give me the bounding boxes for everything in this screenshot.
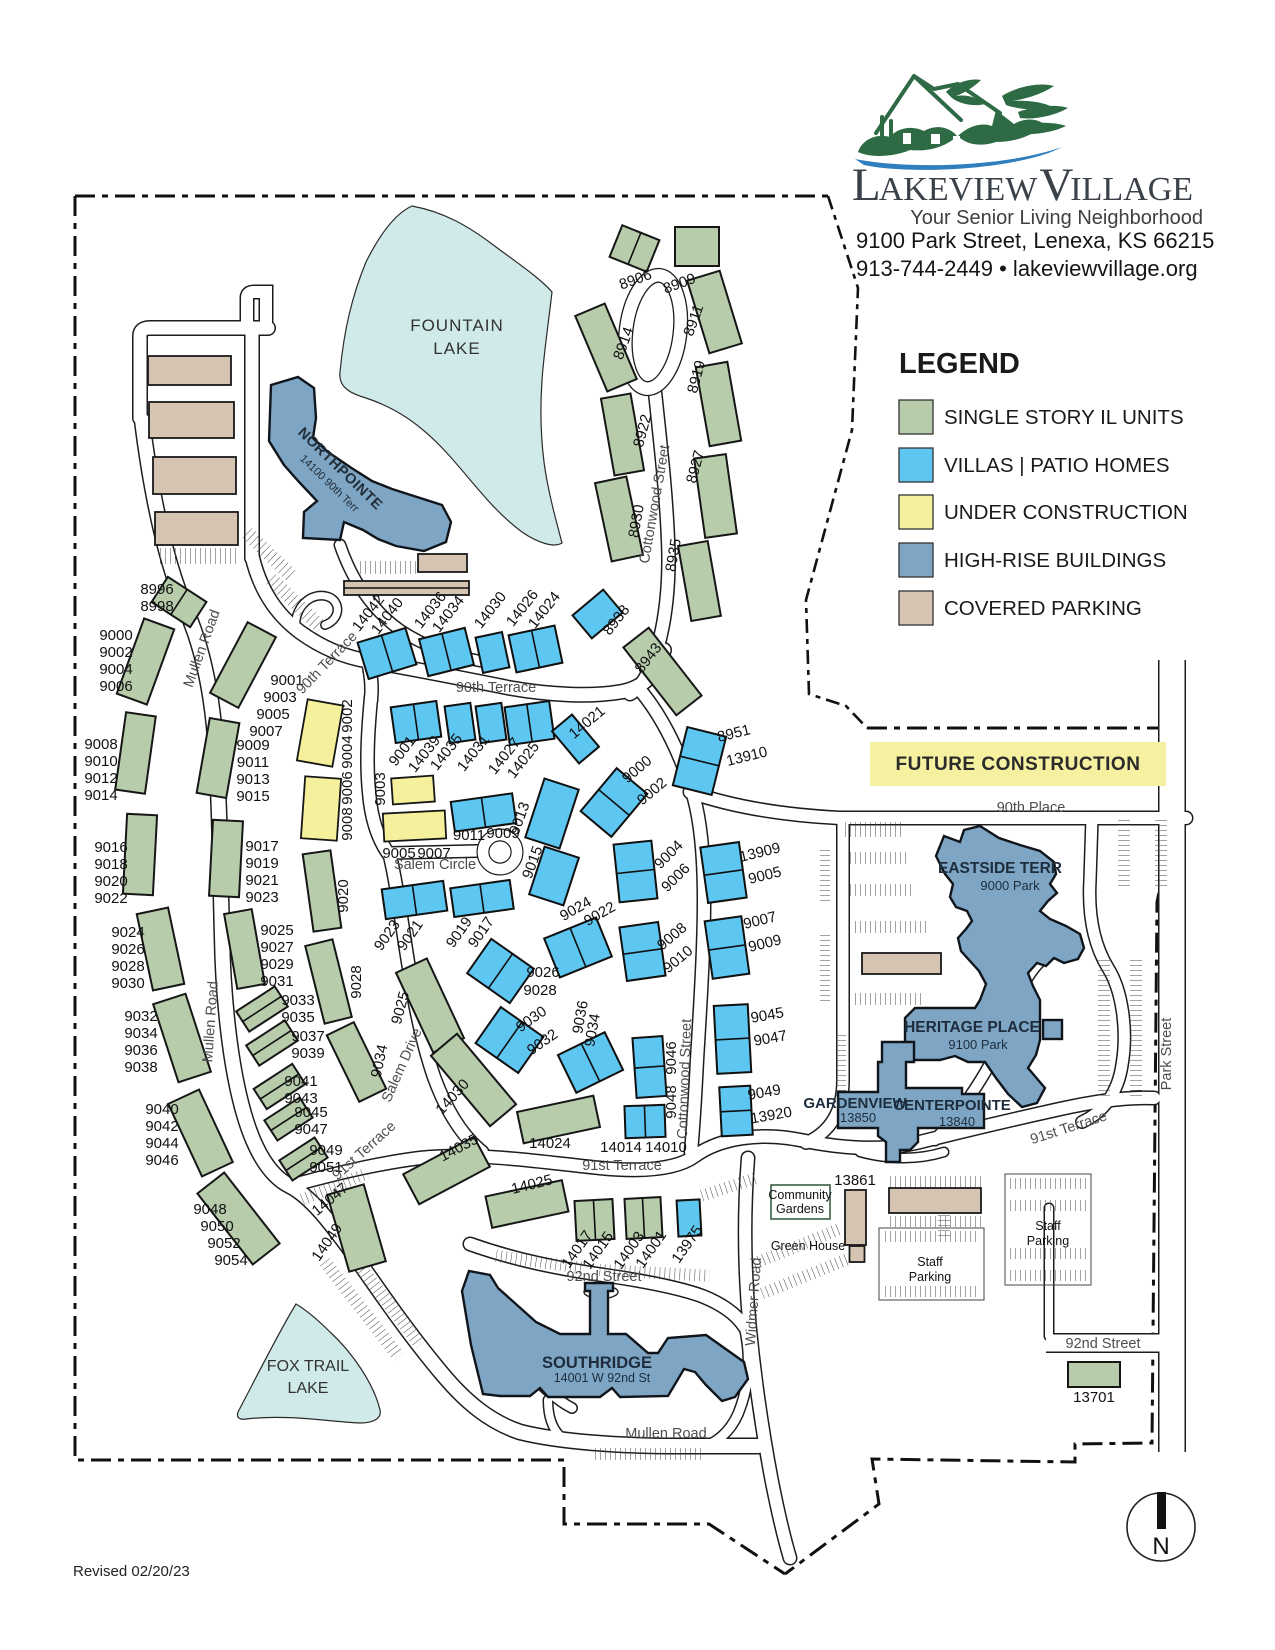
svg-text:9020: 9020 xyxy=(335,879,352,912)
svg-text:9040: 9040 xyxy=(145,1101,178,1118)
svg-text:90th Terrace: 90th Terrace xyxy=(456,680,536,696)
svg-text:N: N xyxy=(1152,1533,1169,1560)
svg-text:9023: 9023 xyxy=(245,889,278,906)
svg-text:LEGEND: LEGEND xyxy=(899,348,1020,380)
svg-text:9022: 9022 xyxy=(94,890,127,907)
svg-text:9036: 9036 xyxy=(124,1042,157,1059)
svg-text:Gardens: Gardens xyxy=(776,1202,824,1216)
svg-text:14001 W 92nd St: 14001 W 92nd St xyxy=(554,1371,651,1385)
svg-text:91st Terrace: 91st Terrace xyxy=(582,1158,662,1174)
svg-text:9008: 9008 xyxy=(339,807,356,840)
svg-text:9008: 9008 xyxy=(84,736,117,753)
svg-text:FOUNTAIN: FOUNTAIN xyxy=(410,316,504,335)
svg-text:9035: 9035 xyxy=(281,1009,314,1026)
svg-text:9049: 9049 xyxy=(309,1142,342,1159)
svg-text:9003: 9003 xyxy=(372,772,389,805)
svg-text:9017: 9017 xyxy=(245,838,278,855)
svg-text:9018: 9018 xyxy=(94,856,127,873)
svg-text:HIGH-RISE BUILDINGS: HIGH-RISE BUILDINGS xyxy=(944,549,1166,572)
svg-text:9004: 9004 xyxy=(99,661,132,678)
svg-text:9050: 9050 xyxy=(200,1218,233,1235)
svg-text:9005: 9005 xyxy=(256,706,289,723)
svg-text:13850: 13850 xyxy=(840,1110,876,1125)
svg-text:SOUTHRIDGE: SOUTHRIDGE xyxy=(542,1354,652,1372)
svg-text:9048: 9048 xyxy=(193,1201,226,1218)
svg-text:9003: 9003 xyxy=(263,689,296,706)
svg-text:9024: 9024 xyxy=(111,924,144,941)
svg-text:9015: 9015 xyxy=(236,788,269,805)
svg-text:9030: 9030 xyxy=(111,975,144,992)
svg-text:9014: 9014 xyxy=(84,787,117,804)
svg-text:9016: 9016 xyxy=(94,839,127,856)
svg-text:9019: 9019 xyxy=(245,855,278,872)
svg-text:13701: 13701 xyxy=(1073,1389,1115,1406)
svg-text:Staff: Staff xyxy=(917,1255,943,1269)
svg-text:9028: 9028 xyxy=(111,958,144,975)
svg-text:Your Senior Living Neighborhoo: Your Senior Living Neighborhood xyxy=(910,207,1203,229)
svg-text:9052: 9052 xyxy=(207,1235,240,1252)
svg-text:VILLAS | PATIO HOMES: VILLAS | PATIO HOMES xyxy=(944,454,1170,477)
svg-text:8998: 8998 xyxy=(140,598,173,615)
svg-text:LAKE: LAKE xyxy=(433,339,480,358)
svg-text:9045: 9045 xyxy=(294,1104,327,1121)
svg-text:14010: 14010 xyxy=(645,1139,687,1156)
svg-text:14014: 14014 xyxy=(600,1139,642,1156)
svg-text:9011: 9011 xyxy=(237,754,269,771)
svg-text:13861: 13861 xyxy=(834,1172,876,1189)
svg-text:9000 Park: 9000 Park xyxy=(980,878,1040,893)
svg-text:9006: 9006 xyxy=(99,678,132,695)
svg-text:9032: 9032 xyxy=(124,1008,157,1025)
svg-text:9042: 9042 xyxy=(145,1118,178,1135)
svg-text:Green House: Green House xyxy=(771,1239,845,1253)
svg-text:8996: 8996 xyxy=(140,581,173,598)
svg-text:Park Street: Park Street xyxy=(1159,1018,1175,1091)
svg-text:9002: 9002 xyxy=(339,699,356,732)
svg-text:Community: Community xyxy=(768,1188,832,1202)
svg-text:Revised 02/20/23: Revised 02/20/23 xyxy=(73,1563,190,1580)
svg-text:9028: 9028 xyxy=(348,965,365,998)
svg-text:COVERED PARKING: COVERED PARKING xyxy=(944,597,1142,620)
svg-text:9010: 9010 xyxy=(84,753,117,770)
svg-text:9020: 9020 xyxy=(94,873,127,890)
svg-text:14024: 14024 xyxy=(529,1135,571,1152)
svg-text:9039: 9039 xyxy=(291,1045,324,1062)
svg-text:SINGLE STORY IL UNITS: SINGLE STORY IL UNITS xyxy=(944,406,1184,429)
svg-text:FUTURE CONSTRUCTION: FUTURE CONSTRUCTION xyxy=(896,754,1141,775)
svg-text:9100 Park: 9100 Park xyxy=(948,1037,1008,1052)
svg-text:9044: 9044 xyxy=(145,1135,178,1152)
svg-text:92nd Street: 92nd Street xyxy=(1066,1336,1141,1352)
svg-text:9047: 9047 xyxy=(294,1121,327,1138)
svg-text:9021: 9021 xyxy=(245,872,278,889)
svg-text:9033: 9033 xyxy=(281,992,314,1009)
svg-text:EASTSIDE TERR: EASTSIDE TERR xyxy=(938,860,1062,877)
svg-text:Mullen Road: Mullen Road xyxy=(625,1426,706,1442)
svg-text:9000: 9000 xyxy=(99,627,132,644)
svg-text:9034: 9034 xyxy=(124,1025,157,1042)
svg-text:9025: 9025 xyxy=(260,922,293,939)
svg-text:9012: 9012 xyxy=(84,770,117,787)
svg-text:LAKE: LAKE xyxy=(288,1380,329,1397)
svg-text:9100 Park Street, Lenexa, KS 6: 9100 Park Street, Lenexa, KS 66215 xyxy=(856,228,1214,253)
svg-text:9054: 9054 xyxy=(214,1252,247,1269)
svg-text:9046: 9046 xyxy=(145,1152,178,1169)
svg-text:Parking: Parking xyxy=(1027,1234,1069,1248)
svg-text:9004: 9004 xyxy=(339,735,356,768)
svg-text:9028: 9028 xyxy=(523,982,556,999)
svg-text:9041: 9041 xyxy=(284,1073,317,1090)
svg-text:FOX TRAIL: FOX TRAIL xyxy=(267,1358,349,1375)
svg-text:9026: 9026 xyxy=(526,964,559,981)
svg-text:CENTERPOINTE: CENTERPOINTE xyxy=(893,1097,1011,1114)
svg-text:9027: 9027 xyxy=(260,939,293,956)
svg-text:9037: 9037 xyxy=(291,1028,324,1045)
svg-text:9029: 9029 xyxy=(260,956,293,973)
svg-text:9009: 9009 xyxy=(236,737,269,754)
svg-text:9026: 9026 xyxy=(111,941,144,958)
svg-text:913-744-2449 • lakeviewvilla: 913-744-2449 • lakeviewvillage.org xyxy=(856,256,1198,281)
svg-text:UNDER CONSTRUCTION: UNDER CONSTRUCTION xyxy=(944,501,1188,524)
svg-text:9031: 9031 xyxy=(260,973,293,990)
svg-text:Salem Circle: Salem Circle xyxy=(394,857,476,873)
svg-text:9038: 9038 xyxy=(124,1059,157,1076)
svg-text:Staff: Staff xyxy=(1035,1219,1061,1233)
svg-text:9011: 9011 xyxy=(453,827,485,844)
svg-text:HERITAGE PLACE: HERITAGE PLACE xyxy=(904,1019,1040,1036)
svg-text:13840: 13840 xyxy=(939,1114,975,1129)
svg-text:90th Place: 90th Place xyxy=(997,800,1066,816)
svg-text:Parking: Parking xyxy=(909,1270,951,1284)
svg-text:9013: 9013 xyxy=(236,771,269,788)
svg-text:9002: 9002 xyxy=(99,644,132,661)
svg-text:92nd Street: 92nd Street xyxy=(567,1269,642,1285)
svg-text:9006: 9006 xyxy=(339,771,356,804)
